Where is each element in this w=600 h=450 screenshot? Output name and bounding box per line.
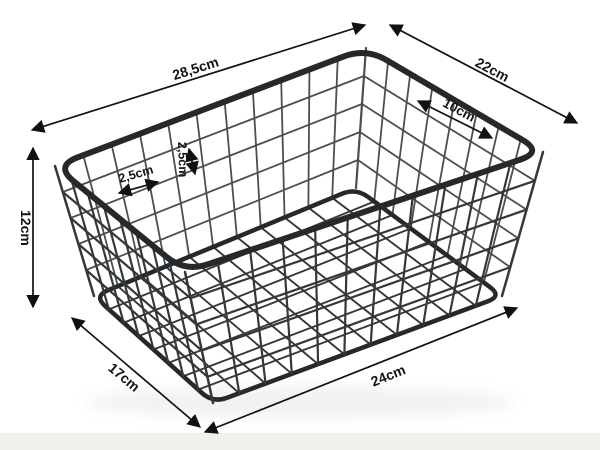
basket-shadow — [85, 386, 515, 418]
dimension-height-label: 12cm — [18, 210, 34, 246]
background — [0, 0, 600, 450]
dimension-mesh-cell-height-label: 2,5cm — [175, 142, 190, 178]
product-dimension-diagram: 28,5cm 22cm 10cm 2,5cm 2,5cm 12cm — [0, 0, 600, 450]
floor-strip — [0, 433, 600, 450]
diagram-stage: 28,5cm 22cm 10cm 2,5cm 2,5cm 12cm — [0, 0, 600, 450]
